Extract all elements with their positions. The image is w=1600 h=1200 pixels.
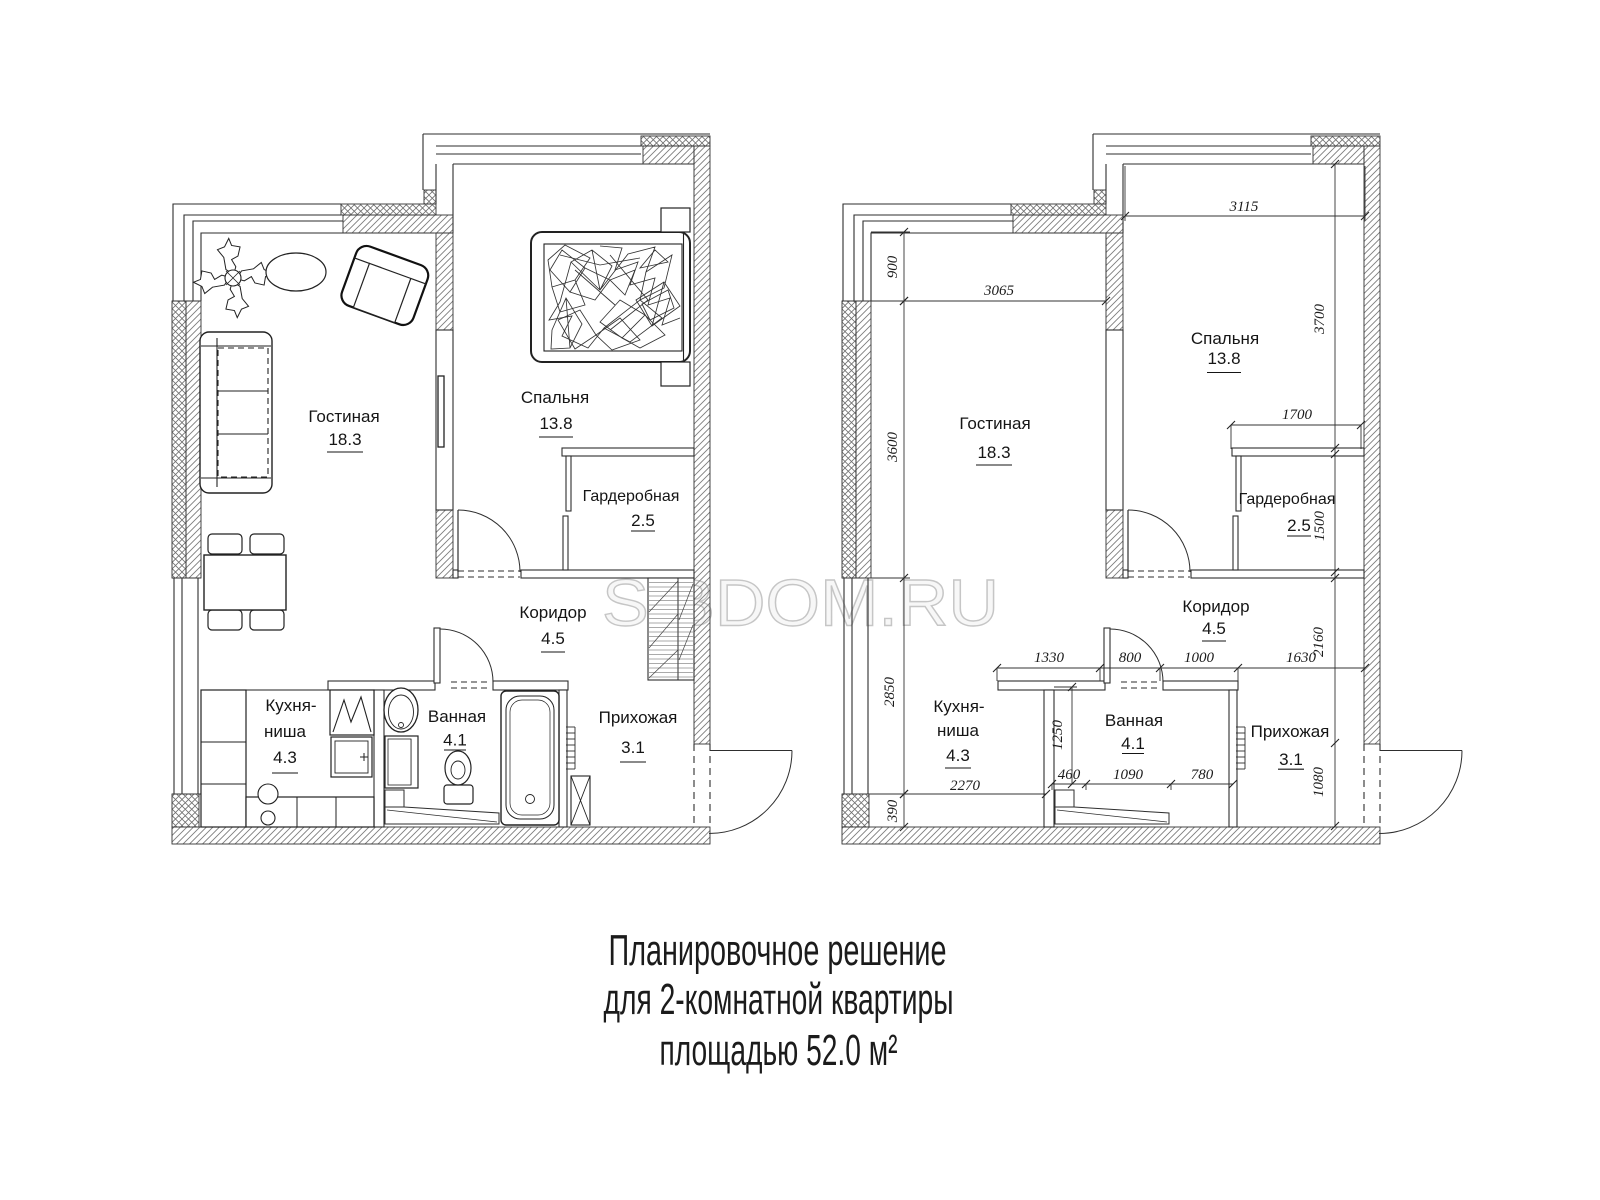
svg-text:Спальня: Спальня [1191, 329, 1259, 348]
svg-text:Спальня: Спальня [521, 388, 589, 407]
svg-text:1700: 1700 [1282, 407, 1313, 423]
svg-text:Ванная: Ванная [428, 707, 486, 726]
svg-text:4.1: 4.1 [1121, 734, 1145, 753]
svg-text:Гардеробная: Гардеробная [1239, 491, 1336, 508]
svg-text:Ванная: Ванная [1105, 711, 1163, 730]
svg-text:1250: 1250 [1050, 720, 1066, 751]
svg-text:1330: 1330 [1034, 650, 1065, 666]
svg-text:900: 900 [885, 255, 901, 278]
svg-text:1090: 1090 [1113, 767, 1144, 783]
svg-text:2.5: 2.5 [631, 511, 655, 530]
svg-text:18.3: 18.3 [977, 443, 1010, 462]
svg-text:для 2-комнатной квартиры: для 2-комнатной квартиры [604, 975, 954, 1024]
svg-text:1080: 1080 [1311, 767, 1327, 798]
svg-text:площадью 52.0 м²: площадью 52.0 м² [660, 1026, 898, 1075]
svg-text:Гостиная: Гостиная [959, 414, 1030, 433]
svg-text:13.8: 13.8 [1207, 349, 1240, 368]
svg-text:Коридор: Коридор [519, 603, 586, 622]
svg-text:Планировочное решение: Планировочное решение [609, 926, 947, 975]
svg-text:3115: 3115 [1229, 199, 1259, 215]
svg-text:1000: 1000 [1184, 650, 1215, 666]
svg-text:4.3: 4.3 [273, 748, 297, 767]
svg-text:800: 800 [1119, 650, 1142, 666]
svg-text:Прихожая: Прихожая [599, 708, 678, 727]
svg-text:4.3: 4.3 [946, 746, 970, 765]
svg-text:3065: 3065 [983, 283, 1015, 299]
svg-text:Кухня-: Кухня- [265, 696, 316, 715]
svg-text:2270: 2270 [950, 778, 981, 794]
svg-text:4.1: 4.1 [443, 731, 467, 750]
svg-text:3600: 3600 [885, 432, 901, 464]
svg-text:3.1: 3.1 [1279, 750, 1303, 769]
svg-text:18.3: 18.3 [328, 430, 361, 449]
svg-text:2160: 2160 [1311, 627, 1327, 658]
svg-text:460: 460 [1058, 767, 1081, 783]
svg-text:1500: 1500 [1312, 511, 1328, 542]
svg-text:Гостиная: Гостиная [308, 407, 379, 426]
svg-text:ниша: ниша [937, 721, 980, 740]
svg-text:Кухня-: Кухня- [933, 697, 984, 716]
svg-text:Гардеробная: Гардеробная [583, 488, 680, 505]
svg-text:390: 390 [885, 799, 901, 823]
svg-text:2.5: 2.5 [1287, 516, 1311, 535]
svg-text:13.8: 13.8 [539, 414, 572, 433]
svg-text:780: 780 [1191, 767, 1214, 783]
svg-text:4.5: 4.5 [541, 629, 565, 648]
svg-text:Прихожая: Прихожая [1251, 722, 1330, 741]
svg-text:Коридор: Коридор [1182, 597, 1249, 616]
svg-text:3.1: 3.1 [621, 738, 645, 757]
svg-text:ниша: ниша [264, 722, 307, 741]
svg-text:3700: 3700 [1312, 304, 1328, 336]
svg-text:2850: 2850 [882, 677, 898, 708]
svg-text:4.5: 4.5 [1202, 619, 1226, 638]
